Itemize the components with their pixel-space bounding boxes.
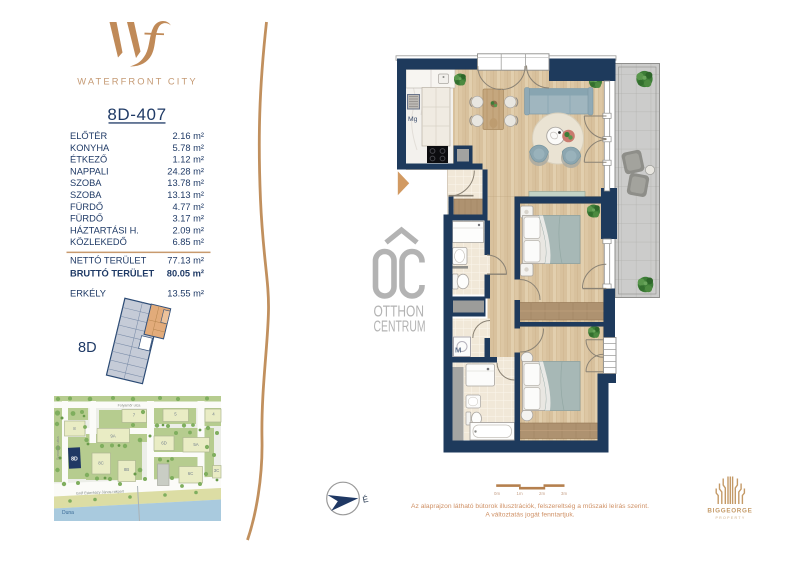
svg-text:HÁZTARTÁSI H.: HÁZTARTÁSI H.: [70, 225, 139, 235]
svg-text:KONYHA: KONYHA: [70, 143, 110, 153]
svg-text:WATERFRONT CITY: WATERFRONT CITY: [77, 76, 197, 87]
svg-text:5A: 5A: [193, 442, 198, 447]
svg-text:BIGGEORGE: BIGGEORGE: [707, 508, 752, 515]
svg-text:Duna: Duna: [62, 510, 74, 516]
svg-text:4.77 m²: 4.77 m²: [172, 202, 204, 212]
svg-text:Sorompó utca: Sorompó utca: [56, 435, 60, 460]
svg-text:80.05 m²: 80.05 m²: [167, 268, 204, 278]
svg-text:Az alaprajzon látható bútorok: Az alaprajzon látható bútorok illusztrác…: [411, 503, 649, 510]
svg-text:ÉTKEZŐ: ÉTKEZŐ: [70, 155, 107, 165]
svg-text:9A: 9A: [110, 434, 115, 439]
svg-text:3C: 3C: [214, 468, 220, 473]
svg-text:Folyamőr utca: Folyamőr utca: [118, 404, 141, 408]
svg-text:2m: 2m: [539, 491, 545, 496]
svg-text:NAPPALI: NAPPALI: [70, 166, 109, 176]
svg-text:3.17 m²: 3.17 m²: [172, 214, 204, 224]
svg-text:8C: 8C: [98, 461, 104, 466]
svg-text:8B: 8B: [124, 467, 129, 472]
svg-text:ERKÉLY: ERKÉLY: [70, 288, 106, 298]
svg-text:13.55 m²: 13.55 m²: [167, 288, 204, 298]
svg-text:1m: 1m: [517, 491, 523, 496]
svg-text:13.13 m²: 13.13 m²: [167, 190, 204, 200]
svg-text:13.78 m²: 13.78 m²: [167, 178, 204, 188]
svg-text:FÜRDŐ: FÜRDŐ: [70, 214, 103, 224]
svg-text:KÖZLEKEDŐ: KÖZLEKEDŐ: [70, 237, 127, 247]
svg-text:8D: 8D: [78, 340, 97, 356]
svg-text:77.13 m²: 77.13 m²: [167, 256, 204, 266]
svg-text:24.28 m²: 24.28 m²: [167, 166, 204, 176]
svg-text:NETTÓ TERÜLET: NETTÓ TERÜLET: [70, 256, 147, 266]
svg-text:2.09 m²: 2.09 m²: [172, 225, 204, 235]
svg-text:ELŐTÉR: ELŐTÉR: [70, 131, 107, 141]
svg-text:PROPERTY: PROPERTY: [715, 516, 745, 520]
svg-text:BRUTTÓ TERÜLET: BRUTTÓ TERÜLET: [70, 267, 155, 278]
svg-text:3m: 3m: [561, 491, 567, 496]
svg-text:A változtatás jogát fenntartju: A változtatás jogát fenntartjuk.: [485, 512, 574, 519]
svg-text:6.85 m²: 6.85 m²: [172, 237, 204, 247]
svg-text:M: M: [455, 346, 461, 355]
svg-text:FÜRDŐ: FÜRDŐ: [70, 202, 103, 212]
svg-text:5.78 m²: 5.78 m²: [172, 143, 204, 153]
svg-text:CENTRUM: CENTRUM: [374, 319, 426, 336]
svg-text:8D-407: 8D-407: [107, 105, 166, 124]
svg-text:Mg: Mg: [408, 116, 418, 123]
svg-text:6C: 6C: [188, 471, 194, 476]
svg-text:2.16 m²: 2.16 m²: [172, 131, 204, 141]
svg-text:1.12 m²: 1.12 m²: [172, 155, 204, 165]
svg-text:8D: 8D: [71, 457, 78, 463]
svg-text:SZOBA: SZOBA: [70, 190, 102, 200]
svg-text:6D: 6D: [161, 441, 167, 446]
svg-text:0m: 0m: [494, 491, 500, 496]
svg-text:SZOBA: SZOBA: [70, 178, 102, 188]
